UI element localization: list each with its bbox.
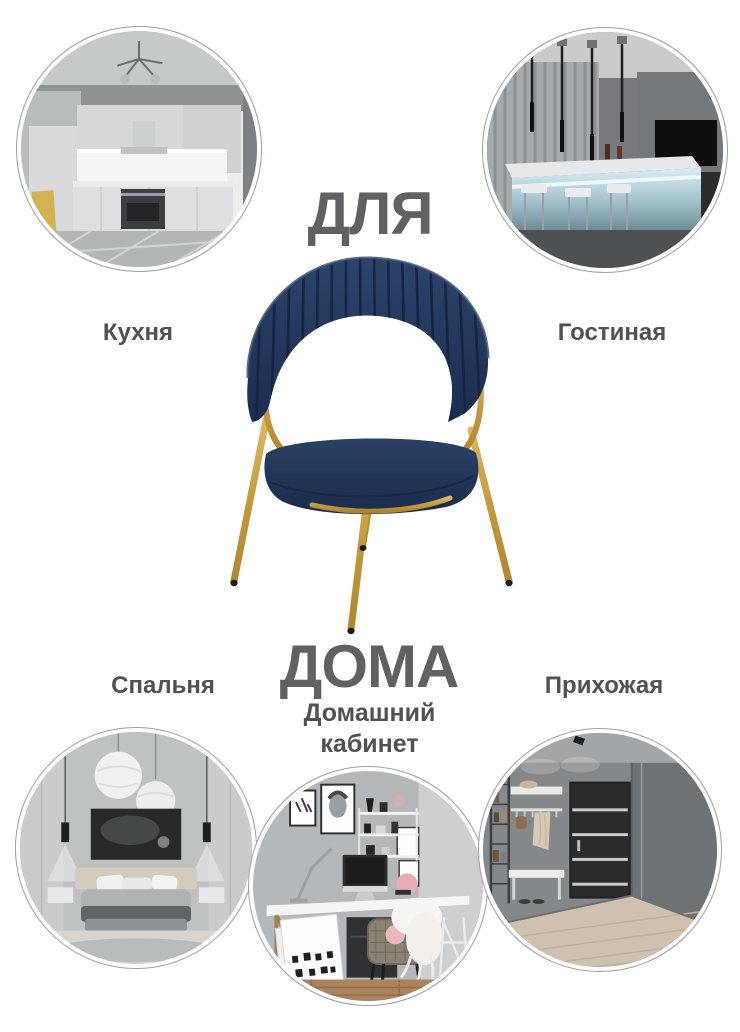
navy-chair-illustration — [226, 250, 518, 644]
room-label-living-room: Гостиная — [512, 318, 712, 347]
home-office-photo — [253, 771, 483, 1001]
living-room-photo-circle — [482, 27, 728, 273]
headline-bottom: ДОМА — [244, 637, 494, 697]
room-label-home-office: Домашний кабинет — [282, 698, 457, 759]
room-label-bedroom: Спальня — [63, 671, 263, 700]
headline-top: ДЛЯ — [270, 184, 470, 244]
hallway-photo-circle — [478, 728, 722, 972]
bedroom-photo — [20, 732, 252, 964]
room-label-kitchen: Кухня — [38, 318, 238, 347]
promo-collage: ДЛЯ Кухня Гостиная — [0, 0, 740, 1032]
home-office-photo-circle — [248, 766, 488, 1006]
kitchen-photo — [21, 31, 257, 267]
kitchen-photo-circle — [16, 26, 262, 272]
living-room-photo — [487, 32, 723, 268]
bedroom-photo-circle — [15, 727, 257, 969]
hallway-photo — [483, 733, 717, 967]
room-label-hallway: Прихожая — [504, 671, 704, 700]
